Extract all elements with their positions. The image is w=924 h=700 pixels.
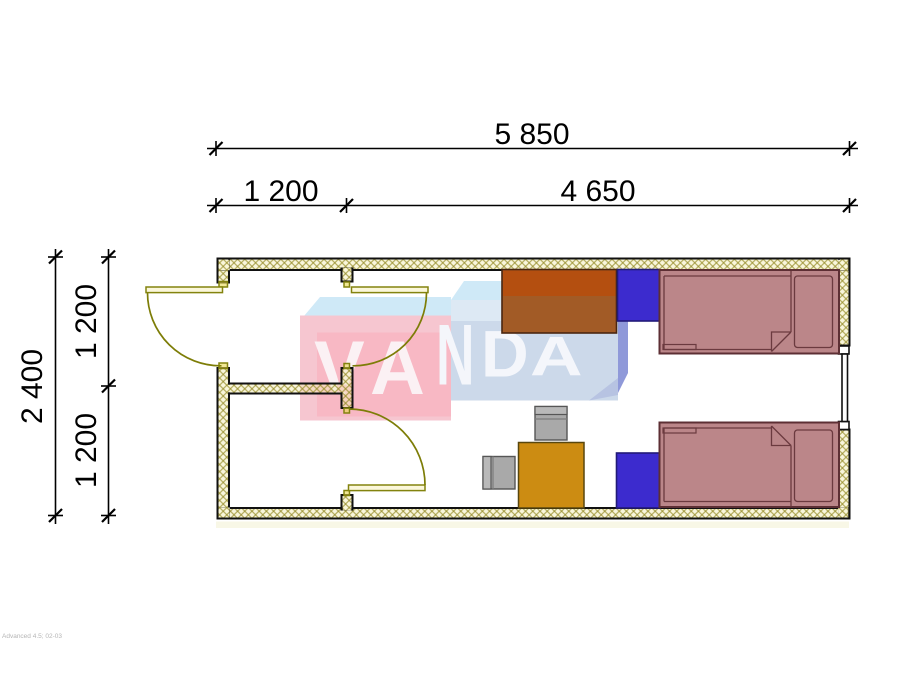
svg-text:1 200: 1 200	[70, 284, 103, 359]
svg-text:5 850: 5 850	[494, 118, 569, 151]
svg-text:V: V	[314, 326, 365, 411]
svg-text:1 200: 1 200	[243, 175, 318, 208]
svg-text:N: N	[436, 308, 475, 404]
svg-text:2 400: 2 400	[16, 349, 49, 424]
svg-text:A: A	[370, 326, 425, 411]
svg-text:4 650: 4 650	[560, 175, 635, 208]
svg-text:Advanced 4.5; 02-03: Advanced 4.5; 02-03	[2, 633, 62, 640]
svg-text:A: A	[530, 325, 583, 388]
svg-text:1 200: 1 200	[70, 413, 103, 488]
